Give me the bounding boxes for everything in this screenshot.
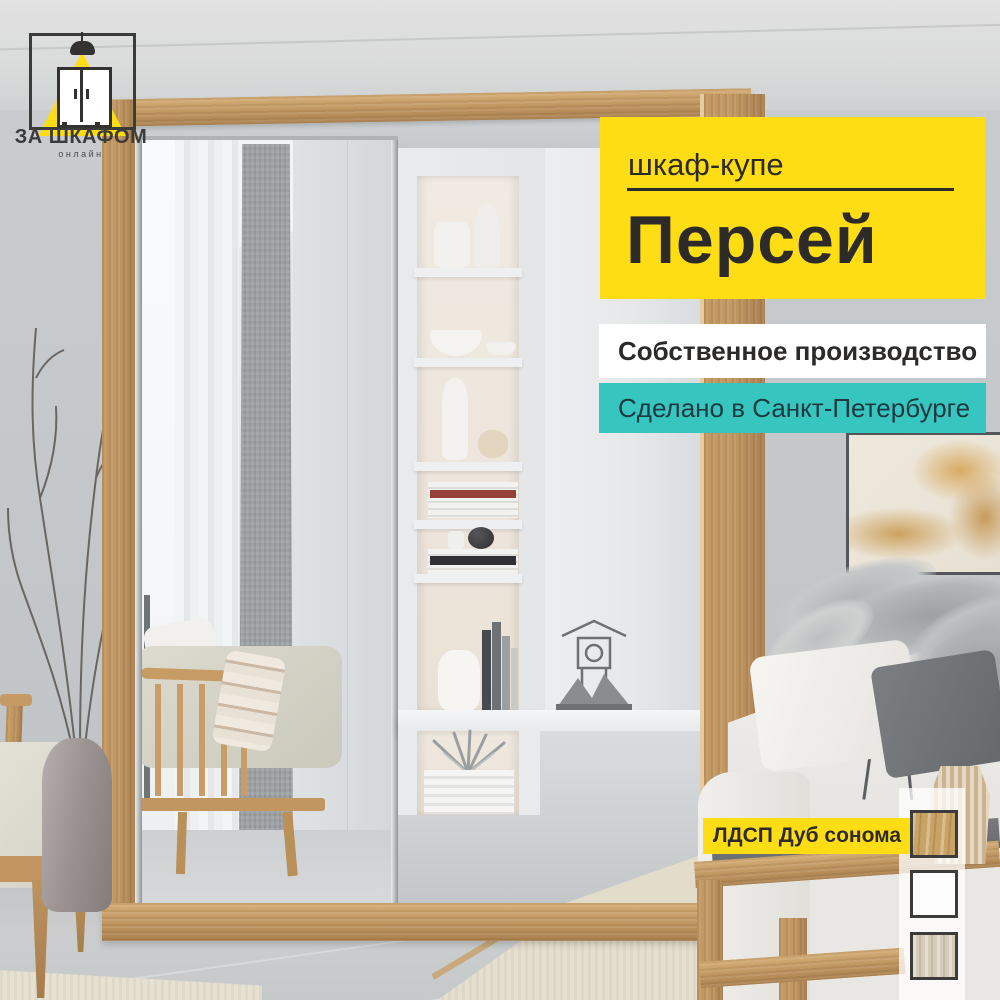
ceramic-floor-vase bbox=[42, 738, 112, 912]
shelf bbox=[414, 520, 522, 529]
promo-image: ЗА ШКАФОМ онлайн шкаф-купе Персей Собств… bbox=[0, 0, 1000, 1000]
product-name: Персей bbox=[626, 201, 878, 279]
wardrobe-icon bbox=[57, 67, 112, 128]
elm-light-swatch bbox=[910, 932, 958, 980]
wardrobe-plinth bbox=[102, 903, 761, 941]
shelf bbox=[414, 358, 522, 367]
mirror-frame-right bbox=[391, 140, 398, 906]
white-swatch bbox=[910, 870, 958, 918]
decor-sphere bbox=[468, 527, 494, 549]
dried-plant-decor bbox=[420, 727, 516, 775]
decor-jug bbox=[434, 222, 470, 268]
origin-badge: Сделано в Санкт-Петербурге bbox=[599, 383, 986, 433]
product-category: шкаф-купе bbox=[628, 147, 784, 183]
standing-book bbox=[492, 622, 501, 710]
mirror-frame-left bbox=[135, 140, 142, 906]
book-red-spine bbox=[430, 490, 516, 498]
book-stack bbox=[428, 482, 518, 518]
brand-name: ЗА ШКАФОМ bbox=[0, 126, 162, 149]
oak-sonoma-swatch bbox=[910, 810, 958, 858]
material-badge-label: ЛДСП Дуб сонома bbox=[713, 824, 901, 848]
origin-badge-label: Сделано в Санкт-Петербурге bbox=[618, 393, 970, 424]
book-stack bbox=[424, 770, 514, 814]
mirror-armchair-seat-rail bbox=[139, 798, 325, 811]
material-badge: ЛДСП Дуб сонома bbox=[703, 818, 911, 854]
wardrobe-mirror-door bbox=[135, 140, 398, 906]
wardrobe-icon-handle bbox=[74, 89, 77, 99]
wardrobe-icon-handle bbox=[86, 89, 89, 99]
book-dark-spine bbox=[430, 556, 516, 565]
sofa-pillow-gray bbox=[870, 649, 1000, 779]
brand-tagline: онлайн bbox=[0, 149, 162, 159]
decor-vase bbox=[474, 204, 500, 268]
mirror-sheer-curtain bbox=[175, 140, 239, 906]
standing-book bbox=[482, 630, 491, 710]
wall-art-frame bbox=[846, 432, 1000, 575]
decor-vase bbox=[438, 650, 480, 712]
production-badge-label: Собственное производство bbox=[618, 336, 977, 367]
standing-book bbox=[502, 636, 510, 710]
mirror-armchair-spindle bbox=[155, 684, 161, 796]
lantern-figurine bbox=[552, 614, 636, 714]
decor-plate bbox=[486, 342, 516, 355]
production-badge: Собственное производство bbox=[599, 324, 986, 378]
mirror-wall-reflection bbox=[293, 140, 398, 906]
decor-vase bbox=[442, 378, 468, 460]
mirror-armchair-spindle bbox=[177, 684, 183, 796]
mirror-wall-corner-line bbox=[347, 140, 348, 906]
decor-pot bbox=[478, 430, 508, 458]
armchair-armrest bbox=[0, 694, 32, 706]
shelf bbox=[414, 268, 522, 277]
shelf bbox=[414, 462, 522, 471]
wardrobe-icon-divider bbox=[80, 67, 83, 122]
standing-book bbox=[511, 648, 518, 710]
product-banner: шкаф-купе Персей bbox=[600, 117, 985, 299]
mirror-floor-reflection bbox=[135, 830, 398, 906]
shelf bbox=[414, 574, 522, 583]
pendant-lamp-icon bbox=[70, 41, 95, 55]
decor-cylinder bbox=[448, 531, 464, 549]
wardrobe-base-opening bbox=[540, 731, 702, 817]
mirror-armchair-spindle bbox=[199, 684, 205, 796]
banner-divider bbox=[627, 188, 954, 191]
